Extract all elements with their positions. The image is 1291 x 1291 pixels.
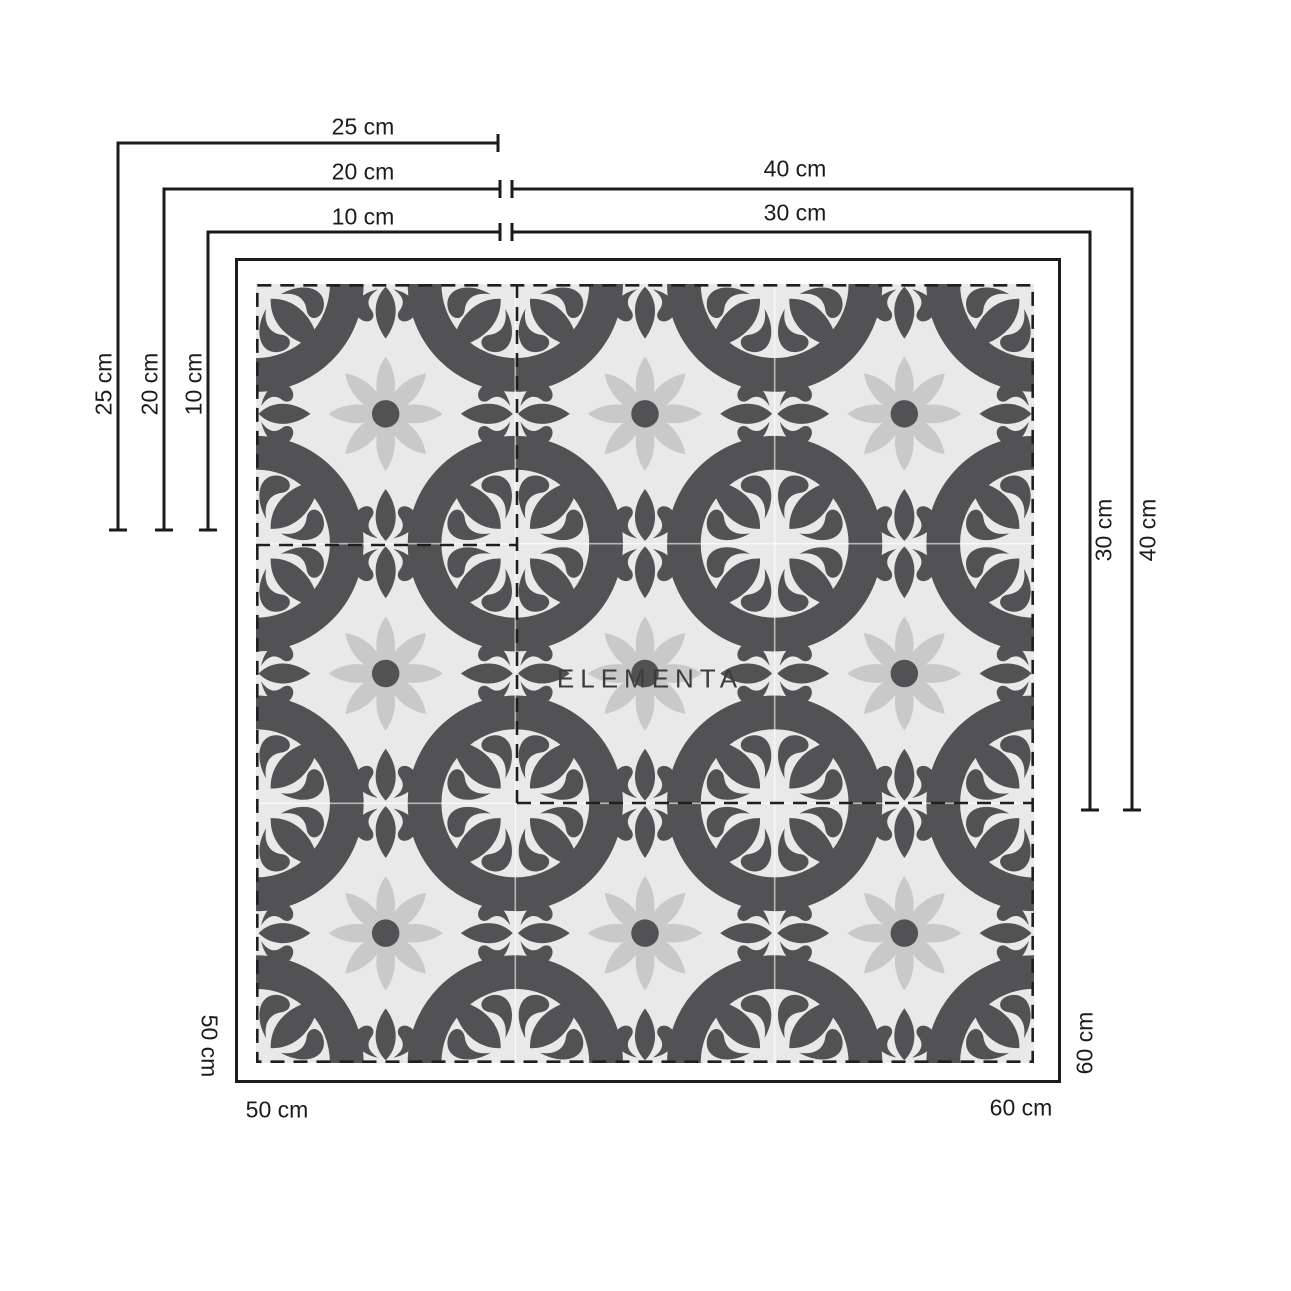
dim-20cm-top-label: 20 cm [332,161,395,184]
dim-60cm-side-label: 60 cm [1074,1012,1097,1075]
dim-20cm-left-label: 20 cm [139,353,162,416]
dim-25cm-top-label: 25 cm [332,116,395,139]
dim-40cm-right-label: 40 cm [1137,499,1160,562]
dim-30cm-top-label: 30 cm [764,202,827,225]
dim-60cm-bottom-label: 60 cm [990,1097,1053,1120]
dim-40cm-top-label: 40 cm [764,158,827,181]
dim-50cm-bottom-label: 50 cm [246,1099,309,1122]
dim-10cm-left-label: 10 cm [183,353,206,416]
dim-50cm-side-label: 50 cm [198,1015,221,1078]
dim-30cm-right-label: 30 cm [1093,499,1116,562]
dim-10cm-top-label: 10 cm [332,206,395,229]
dim-25cm-left-label: 25 cm [93,353,116,416]
brand-watermark: ELEMENTA [557,664,743,695]
tile-dimension-diagram: ELEMENTA 25 cm 20 cm 10 cm 40 cm 30 cm 2… [0,0,1291,1291]
